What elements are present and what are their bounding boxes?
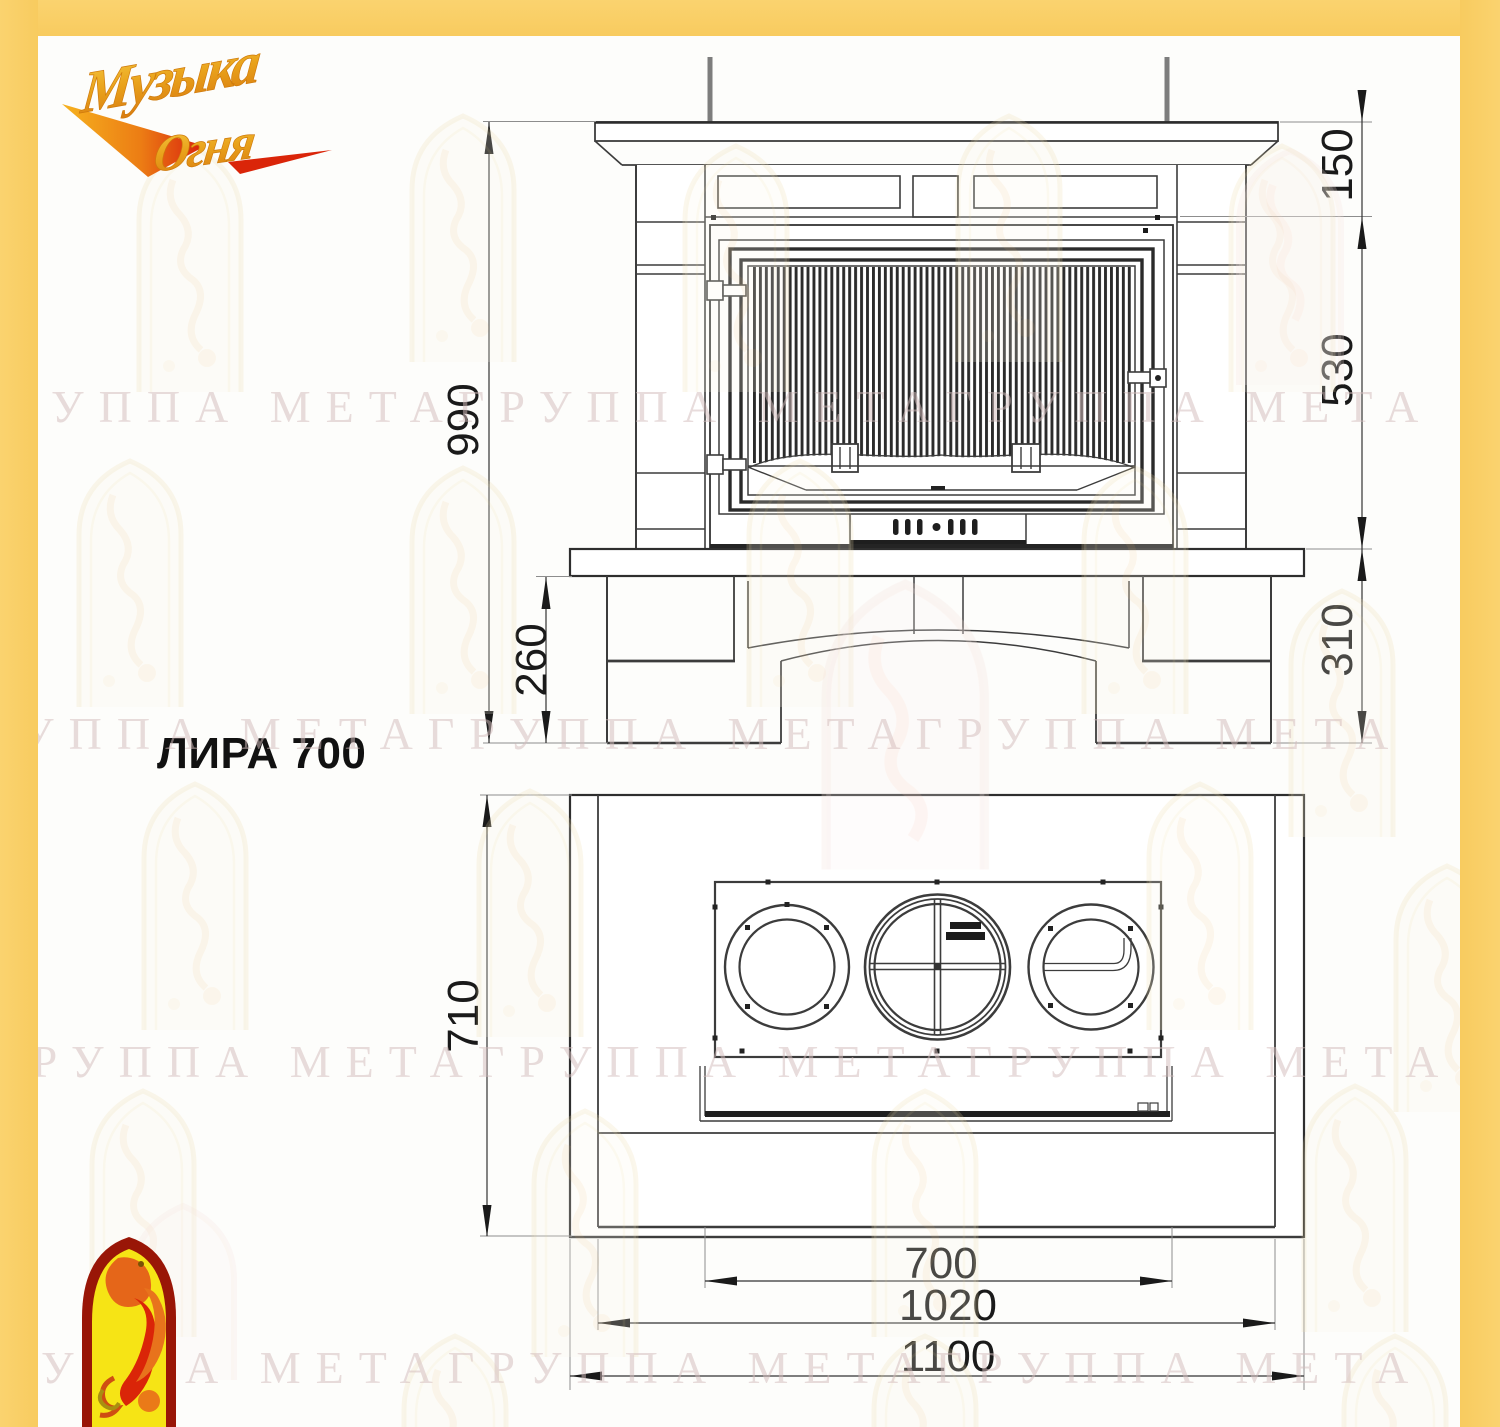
svg-text:ГРУППА МЕТАГРУППА МЕТАГРУППА М: ГРУППА МЕТАГРУППА МЕТАГРУППА МЕТА — [0, 1036, 1453, 1087]
svg-text:ГРУППА МЕТАГРУППА МЕТАГРУППА М: ГРУППА МЕТАГРУППА МЕТАГРУППА МЕТА — [0, 1342, 1423, 1393]
svg-text:ГРУППА МЕТАГРУППА МЕТАГРУППА М: ГРУППА МЕТАГРУППА МЕТАГРУППА МЕТА — [0, 708, 1403, 759]
svg-text:ГРУППА МЕТАГРУППА МЕТАГРУППА М: ГРУППА МЕТАГРУППА МЕТАГРУППА МЕТА — [0, 381, 1433, 432]
